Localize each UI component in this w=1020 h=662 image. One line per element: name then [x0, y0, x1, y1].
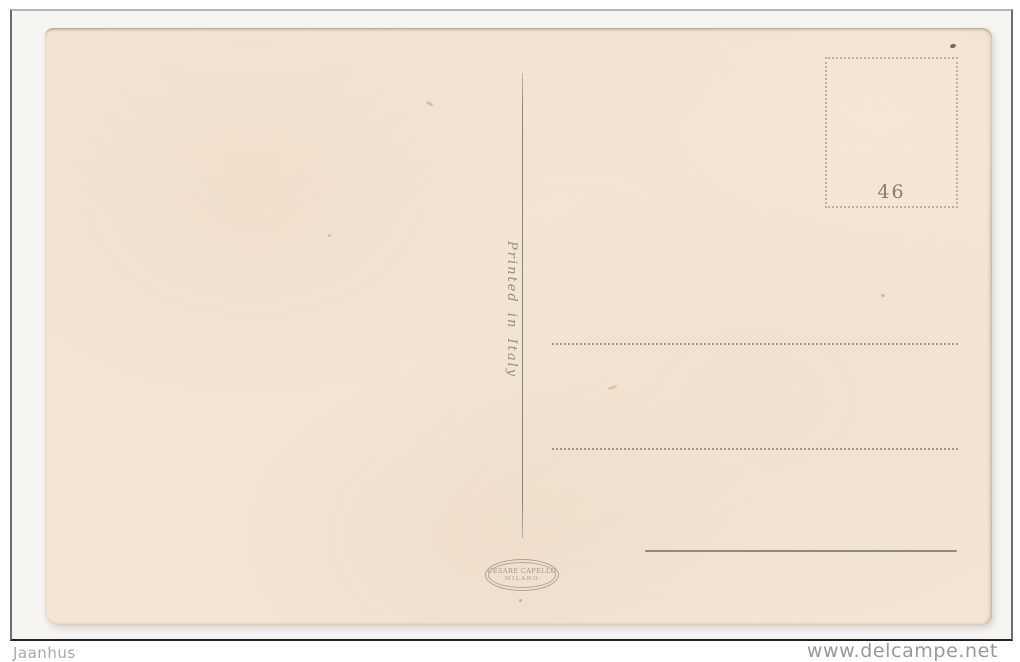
- printed-in-italy-label: Printed in Italy: [501, 241, 519, 369]
- publisher-name: CESARE CAPELLO: [488, 568, 557, 575]
- site-watermark: www.delcampe.net: [807, 640, 998, 662]
- stamp-box: 46: [825, 57, 958, 208]
- photo-frame: Printed in Italy 46 CESARE CAPELLO MILAN…: [10, 9, 1013, 641]
- seller-name: Jaanhus: [13, 644, 76, 662]
- paper-speck-tan: [881, 294, 885, 297]
- signature-line: [645, 550, 957, 552]
- paper-speck-dark: [949, 43, 956, 49]
- address-line-1: [552, 343, 958, 345]
- address-line-2: [552, 448, 958, 450]
- postcard-back: Printed in Italy 46 CESARE CAPELLO MILAN…: [45, 28, 992, 625]
- stamp-box-number: 46: [877, 181, 905, 206]
- paper-smudge-red: [608, 385, 617, 390]
- paper-speck-gray: [328, 234, 331, 237]
- paper-speck-orange: [519, 599, 522, 602]
- center-divider-line: [522, 73, 523, 538]
- publisher-city: MILANO: [488, 576, 557, 582]
- publisher-logo: CESARE CAPELLO MILANO: [485, 559, 559, 591]
- delcampe-listing-image: Printed in Italy 46 CESARE CAPELLO MILAN…: [0, 0, 1020, 662]
- publisher-logo-text: CESARE CAPELLO MILANO: [488, 568, 557, 581]
- paper-smudge-gray: [426, 101, 434, 107]
